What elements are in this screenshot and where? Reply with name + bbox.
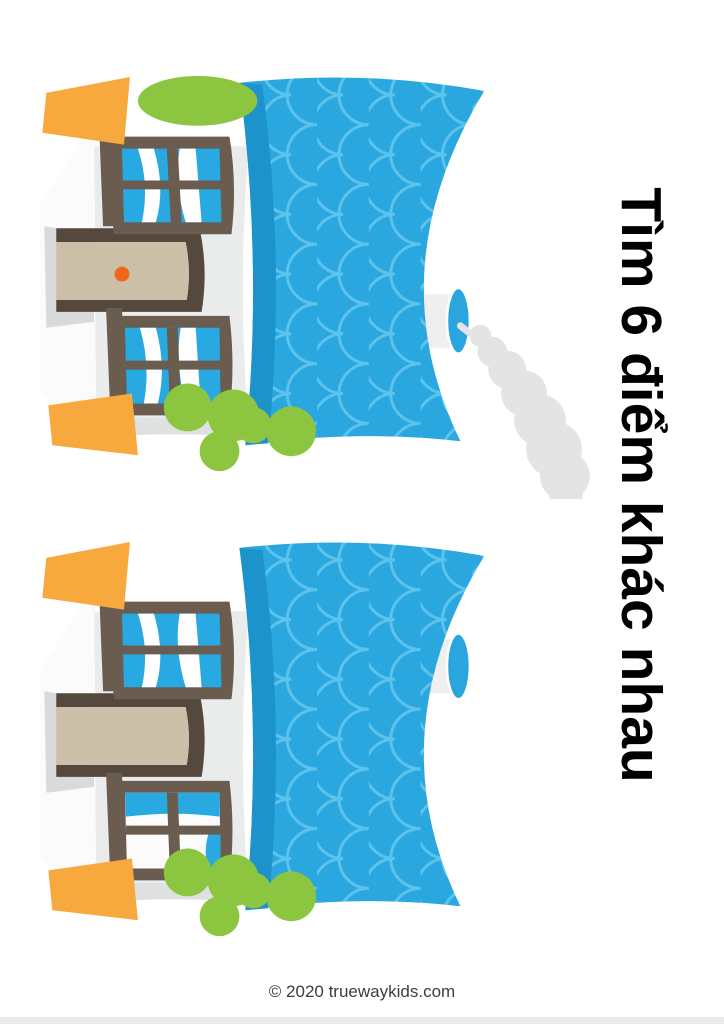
vertical-instruction-title: Tìm 6 điểm khác nhau (586, 165, 696, 805)
door (56, 693, 204, 777)
roof (239, 542, 484, 910)
window-left-vertical-bar (122, 645, 222, 654)
door-knob (115, 267, 130, 282)
chimney-smoke (460, 325, 589, 499)
worksheet-page: Tìm 6 điểm khác nhau © 2020 truewaykids.… (0, 0, 724, 1024)
house-illustration-top (40, 65, 628, 499)
pot-left (42, 542, 130, 610)
flower-pot (42, 542, 130, 610)
roof (239, 77, 484, 445)
page-edge-strip (0, 1017, 724, 1024)
round-bush (138, 76, 257, 126)
copyright-credit: © 2020 truewaykids.com (0, 982, 724, 1002)
door-slab (56, 707, 189, 765)
chimney-cap (447, 288, 470, 354)
roof-scales (239, 77, 484, 445)
house-illustration-bottom (40, 530, 628, 964)
chimney-cap (447, 634, 470, 700)
roof-scales (239, 542, 484, 910)
flower-pot (42, 77, 130, 145)
door (56, 228, 204, 312)
